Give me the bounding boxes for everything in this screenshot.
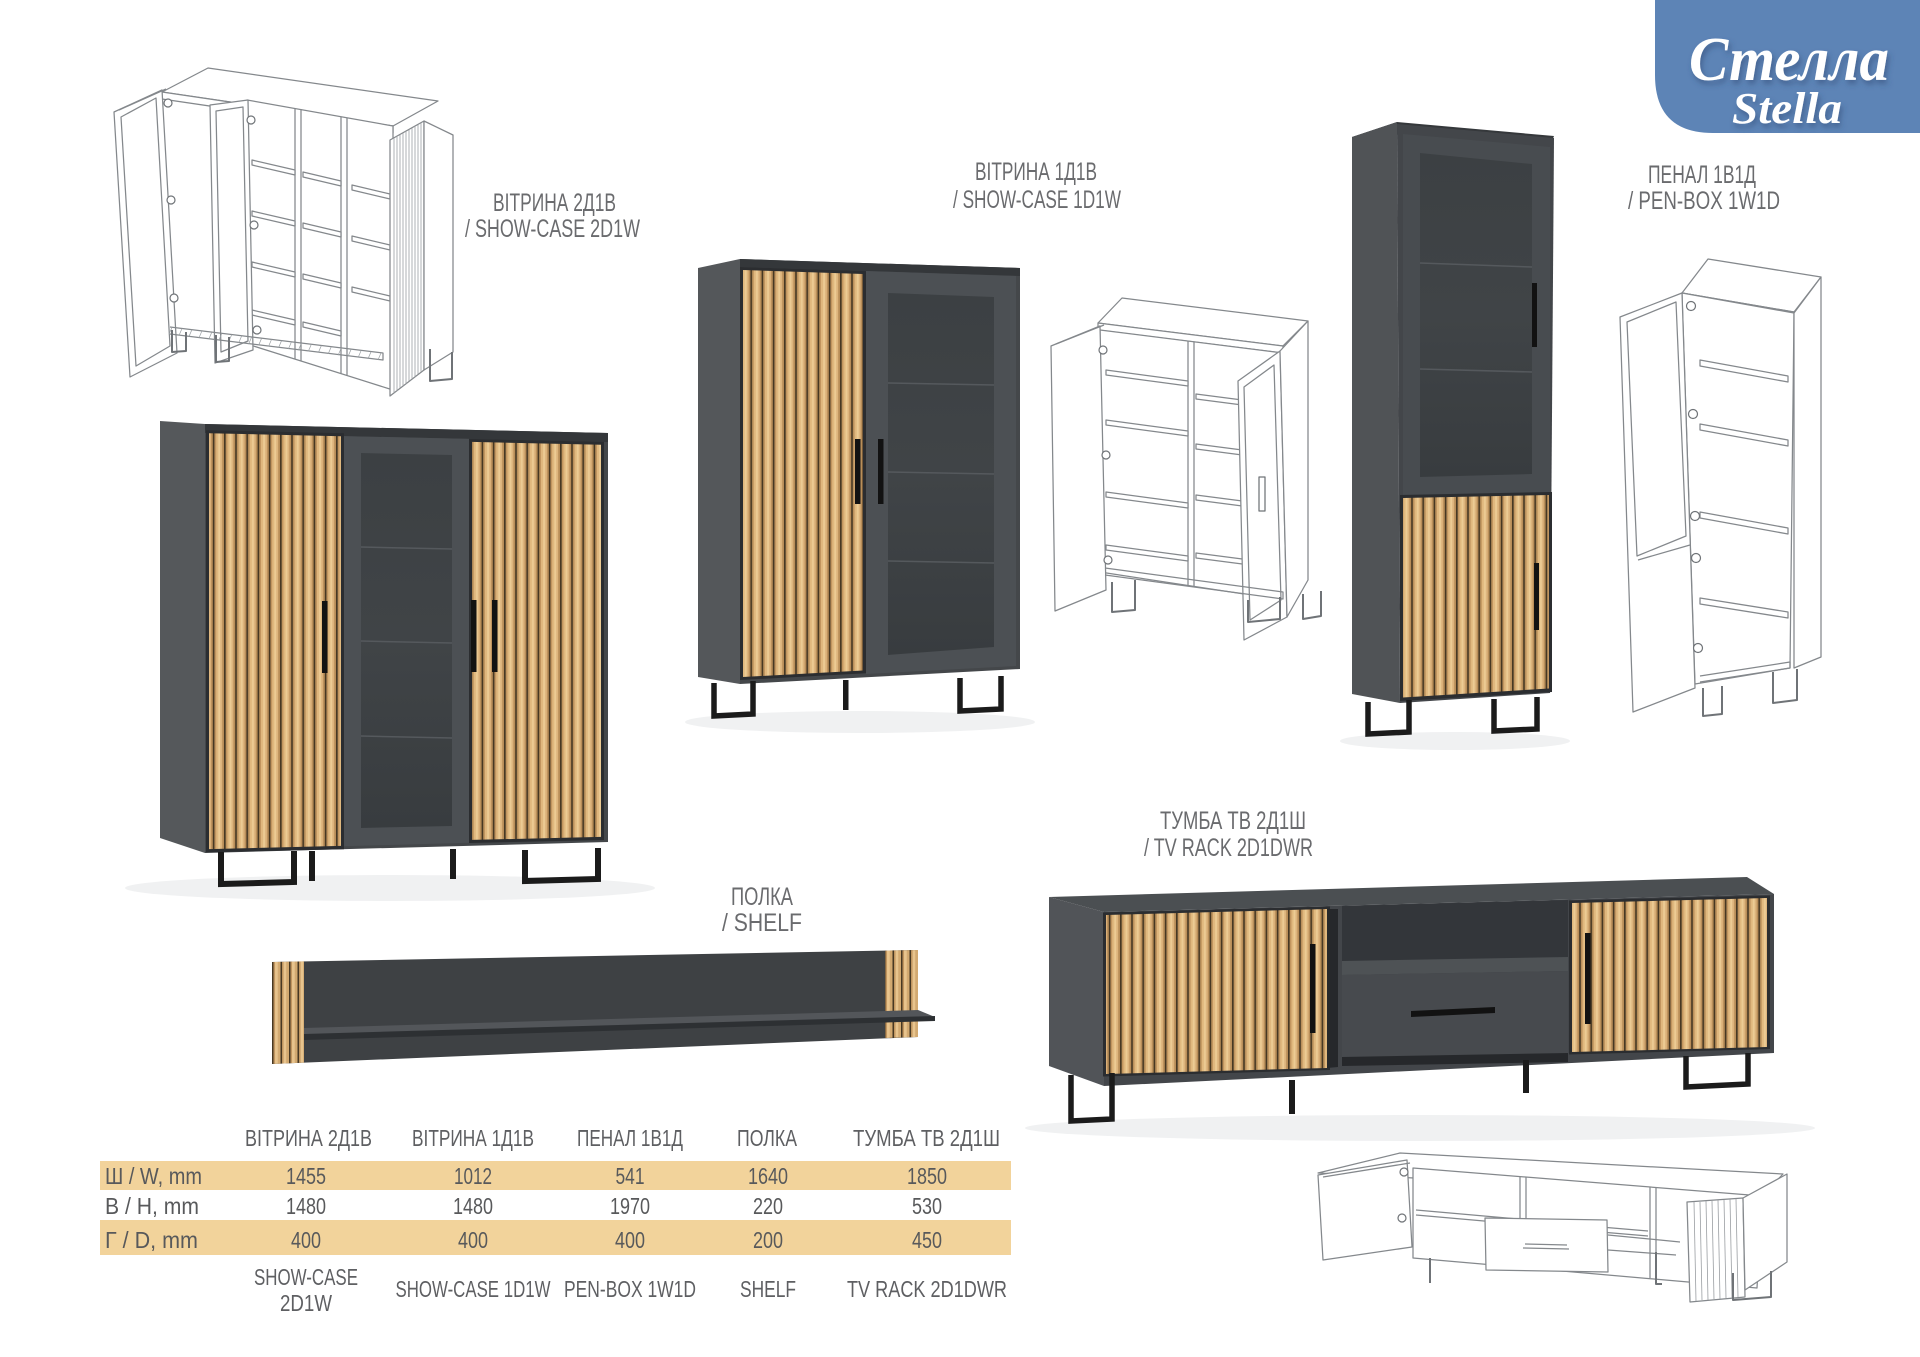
svg-text:SHOW-CASE: SHOW-CASE [254, 1264, 358, 1290]
svg-text:ПЕНАЛ 1В1Д: ПЕНАЛ 1В1Д [577, 1125, 683, 1151]
svg-text:Г / D, mm: Г / D, mm [105, 1227, 198, 1253]
svg-text:ПОЛКА: ПОЛКА [737, 1125, 798, 1151]
svg-text:1455: 1455 [286, 1163, 326, 1189]
svg-text:/ PEN-BOX 1W1D: / PEN-BOX 1W1D [1628, 187, 1780, 215]
svg-text:ТУМБА ТВ 2Д1Ш: ТУМБА ТВ 2Д1Ш [1160, 807, 1306, 835]
svg-text:ТУМБА ТВ 2Д1Ш: ТУМБА ТВ 2Д1Ш [853, 1125, 1000, 1151]
svg-text:400: 400 [291, 1227, 321, 1253]
svg-text:ВІТРИНА 1Д1В: ВІТРИНА 1Д1В [975, 158, 1097, 186]
svg-text:400: 400 [615, 1227, 645, 1253]
svg-text:541: 541 [616, 1163, 645, 1189]
svg-text:PEN-BOX 1W1D: PEN-BOX 1W1D [564, 1276, 696, 1302]
svg-text:ВІТРИНА 2Д1В: ВІТРИНА 2Д1В [245, 1125, 372, 1151]
svg-text:1012: 1012 [454, 1163, 492, 1189]
svg-text:400: 400 [458, 1227, 488, 1253]
svg-text:SHOW-CASE 1D1W: SHOW-CASE 1D1W [396, 1276, 551, 1302]
svg-text:В / H, mm: В / H, mm [105, 1193, 199, 1219]
svg-text:/ SHELF: / SHELF [722, 909, 802, 937]
svg-text:1480: 1480 [453, 1193, 493, 1219]
svg-text:Ш / W, mm: Ш / W, mm [105, 1163, 202, 1189]
svg-text:2D1W: 2D1W [280, 1290, 332, 1316]
svg-text:200: 200 [753, 1227, 783, 1253]
svg-text:ВІТРИНА 1Д1В: ВІТРИНА 1Д1В [412, 1125, 534, 1151]
svg-text:530: 530 [912, 1193, 942, 1219]
svg-text:220: 220 [753, 1193, 783, 1219]
svg-text:1640: 1640 [748, 1163, 788, 1189]
svg-text:ПОЛКА: ПОЛКА [731, 883, 793, 911]
svg-text:1850: 1850 [907, 1163, 947, 1189]
svg-text:1970: 1970 [610, 1193, 650, 1219]
svg-text:ВІТРИНА 2Д1В: ВІТРИНА 2Д1В [493, 189, 616, 217]
svg-text:ПЕНАЛ 1В1Д: ПЕНАЛ 1В1Д [1648, 161, 1756, 189]
svg-text:/ SHOW-CASE 2D1W: / SHOW-CASE 2D1W [465, 215, 640, 243]
svg-text:/ SHOW-CASE 1D1W: / SHOW-CASE 1D1W [953, 186, 1121, 214]
svg-text:1480: 1480 [286, 1193, 326, 1219]
svg-text:SHELF: SHELF [740, 1276, 796, 1302]
svg-text:Stella: Stella [1732, 84, 1842, 133]
svg-text:TV RACK 2D1DWR: TV RACK 2D1DWR [847, 1276, 1007, 1302]
svg-text:/ TV RACK 2D1DWR: / TV RACK 2D1DWR [1144, 834, 1313, 862]
svg-text:450: 450 [912, 1227, 942, 1253]
